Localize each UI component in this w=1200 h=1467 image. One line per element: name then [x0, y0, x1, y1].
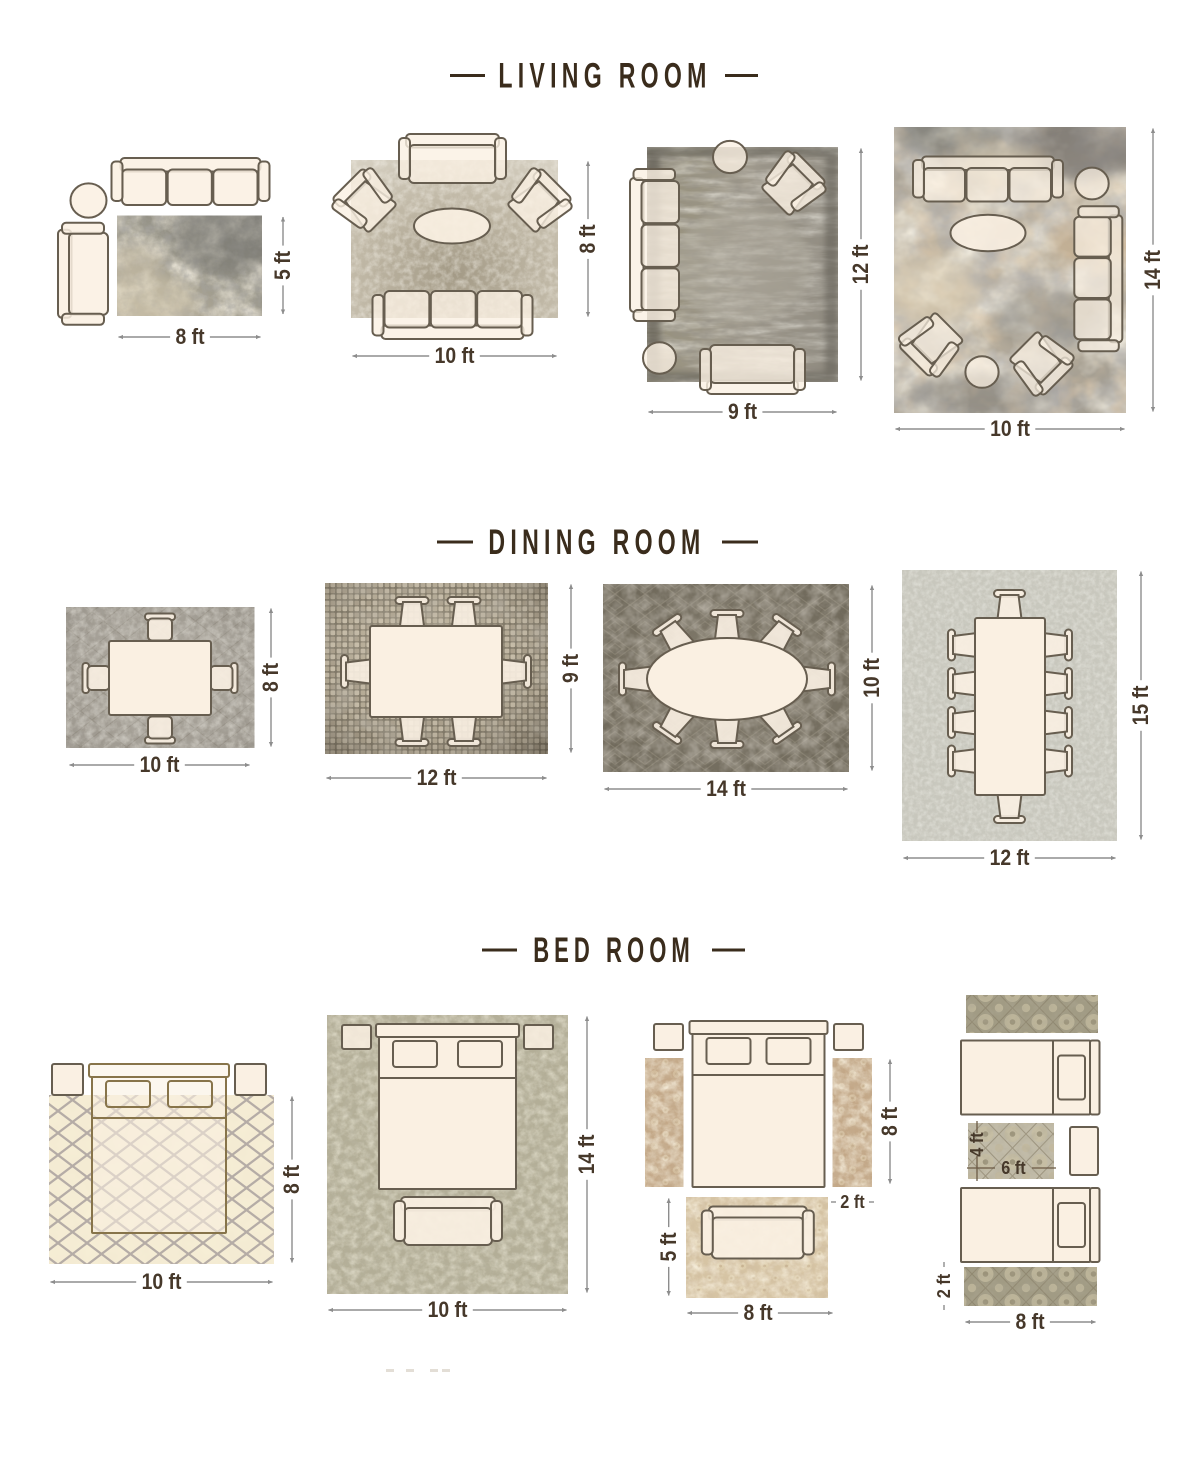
svg-text:10 ft: 10 ft	[990, 417, 1030, 441]
svg-text:14 ft: 14 ft	[706, 777, 746, 801]
svg-text:14 ft: 14 ft	[1141, 250, 1165, 290]
svg-text:8 ft: 8 ft	[259, 663, 283, 692]
svg-text:8 ft: 8 ft	[878, 1107, 902, 1136]
svg-text:14 ft: 14 ft	[575, 1135, 599, 1175]
svg-text:8 ft: 8 ft	[1015, 1310, 1044, 1334]
svg-text:9 ft: 9 ft	[559, 654, 583, 683]
svg-text:12 ft: 12 ft	[990, 846, 1030, 870]
svg-text:6 ft: 6 ft	[1001, 1157, 1026, 1178]
svg-text:8 ft: 8 ft	[576, 224, 600, 253]
svg-text:10 ft: 10 ft	[435, 344, 475, 368]
svg-text:2 ft: 2 ft	[840, 1191, 865, 1212]
svg-text:4 ft: 4 ft	[966, 1132, 987, 1157]
svg-text:LIVING ROOM: LIVING ROOM	[498, 57, 711, 96]
svg-text:12 ft: 12 ft	[849, 245, 873, 285]
svg-text:5 ft: 5 ft	[657, 1232, 681, 1261]
svg-text:10 ft: 10 ft	[428, 1298, 468, 1322]
svg-text:8 ft: 8 ft	[280, 1165, 304, 1194]
svg-text:10 ft: 10 ft	[140, 753, 180, 777]
svg-text:DINING ROOM: DINING ROOM	[488, 523, 705, 562]
svg-text:10 ft: 10 ft	[860, 658, 884, 698]
svg-text:12 ft: 12 ft	[417, 766, 457, 790]
svg-text:8 ft: 8 ft	[175, 325, 204, 349]
svg-text:BED ROOM: BED ROOM	[533, 932, 695, 970]
svg-text:2 ft: 2 ft	[933, 1274, 954, 1299]
svg-text:15 ft: 15 ft	[1129, 686, 1153, 726]
svg-text:10 ft: 10 ft	[142, 1270, 182, 1294]
svg-text:5 ft: 5 ft	[271, 251, 295, 280]
svg-text:9 ft: 9 ft	[728, 400, 757, 424]
svg-text:8 ft: 8 ft	[743, 1301, 772, 1325]
